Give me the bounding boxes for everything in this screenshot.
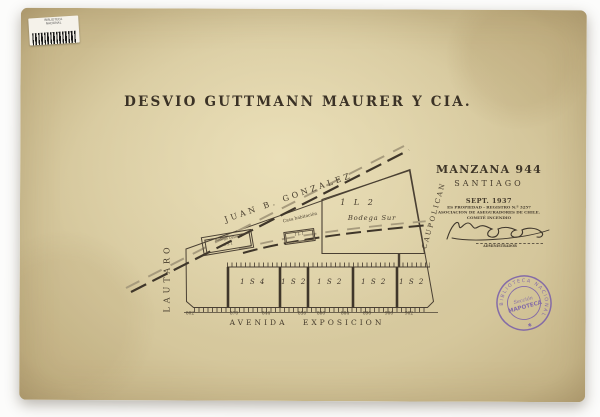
manzana-label: MANZANA 944 [429,163,549,176]
signer-role-label: ADMINISTRADOR [475,244,525,248]
street-number-9: 902 [400,311,417,316]
street-number-4: 856 [293,311,310,316]
scanned-map-photo: BIBLIOTECA NACIONAL [0,0,600,417]
page-title: DESVIO GUTTMANN MAURER Y CIA. [118,94,478,110]
property-line-1: ES PROPIEDAD - REGISTRO N.º 3257 [447,205,531,210]
street-number-3: 844 [257,311,274,316]
row-lot-3: 1 S 2 [308,278,352,286]
street-avenida-exposicion: AVENIDA EXPOSICION [222,318,392,327]
property-line-2: ASOCIACION DE ASEGURADORES DE CHILE. [438,210,540,215]
big-lot-name: Bodega Sur [346,214,398,222]
street-number-6: 884 [336,311,353,316]
big-lot-code: 1 L 2 [334,198,382,207]
barcode-label: BIBLIOTECA NACIONAL [28,15,80,45]
street-lautaro: LAUTARO [163,249,172,313]
date-label: SEPT. 1937 [429,197,549,205]
barcode-text: BIBLIOTECA NACIONAL [41,17,66,26]
street-number-8: 900 [380,311,397,316]
street-number-5: 860 [312,311,329,316]
street-number-7: 890 [358,311,375,316]
street-number-2: 870 [225,311,242,316]
property-line-3: COMITÉ INCENDIO [467,215,511,220]
row-lot-1: 1 S 4 [231,278,275,286]
property-note: ES PROPIEDAD - REGISTRO N.º 3257 ASOCIAC… [431,205,547,220]
street-number-1: 802 [181,311,198,316]
casa-habitacion-code: 1 L 1 [290,231,308,238]
row-lot-5: 1 S 2 [390,278,434,286]
